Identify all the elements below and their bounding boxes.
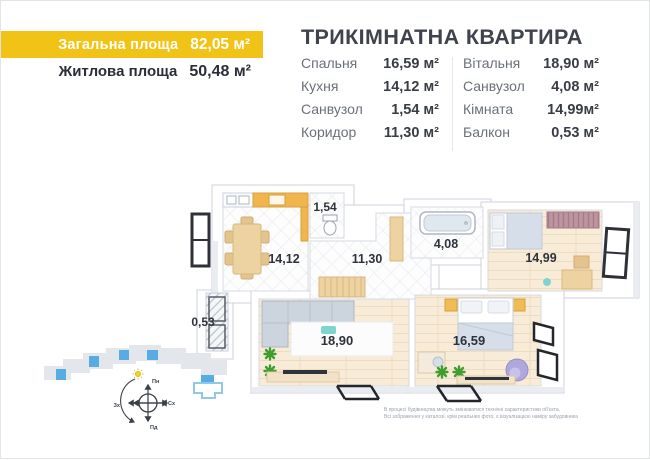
room-value: 0,53 м²: [551, 125, 599, 141]
table-row: Спальня 16,59 м²: [301, 55, 439, 78]
compass: Пн Сх Пд Зх: [113, 369, 175, 432]
room-label: Санвузол: [463, 78, 525, 94]
living-area-banner: Житлова площа 50,48 м²: [1, 58, 251, 85]
table-divider: [452, 57, 453, 151]
bed: [490, 213, 542, 249]
room-value: 4,08 м²: [551, 79, 599, 95]
room-area-label: 14,99: [525, 251, 556, 265]
room-label: Спальня: [301, 55, 357, 71]
bedroom-area-label: 16,59: [453, 333, 486, 348]
room-bedroom-1: 16,59: [415, 295, 557, 401]
table-row: Кухня 14,12 м²: [301, 78, 439, 101]
compass-south-label: Пд: [150, 425, 158, 431]
page-title: ТРИКІМНАТНА КВАРТИРА: [301, 25, 583, 50]
living-area-value: 50,48 м²: [189, 63, 251, 81]
room-table-right-column: Вітальня 18,90 м² Санвузол 4,08 м² Кімна…: [463, 55, 599, 147]
living-area-label: Житлова площа: [59, 63, 178, 80]
highlighted-building: [194, 375, 222, 398]
table-row: Коридор 11,30 м²: [301, 124, 439, 147]
room-label: Санвузол: [301, 101, 363, 117]
sun-icon: [133, 369, 144, 380]
compass-north-label: Пн: [152, 379, 159, 385]
tv-stand: [457, 376, 515, 384]
table-row: Санвузол 4,08 м²: [463, 78, 599, 101]
room-value: 1,54 м²: [391, 102, 439, 118]
room-window: [603, 228, 628, 277]
balcony-area-label: 0,53: [191, 315, 215, 329]
corridor-area-label: 11,30: [352, 252, 383, 266]
hall-cabinet: [390, 217, 403, 261]
room-label: Кухня: [301, 78, 338, 94]
total-area-value: 82,05 м²: [190, 36, 250, 54]
room-value: 11,30 м²: [384, 125, 439, 141]
room-table-left-column: Спальня 16,59 м² Кухня 14,12 м² Санвузол…: [301, 55, 439, 147]
room-value: 16,59 м²: [383, 56, 439, 72]
compass-west-label: Зх: [113, 403, 120, 409]
tv-stand: [267, 370, 339, 382]
disclaimer: В процесі будівництва можуть змінюватися…: [384, 407, 619, 420]
room-label: Вітальня: [463, 55, 520, 71]
bathroom-large-area-label: 4,08: [434, 237, 458, 251]
room-bathroom-small: 1,54: [310, 193, 344, 238]
room-kitchen: 14,12: [192, 193, 308, 291]
kitchen-area-label: 14,12: [268, 252, 299, 266]
plant-icon: [437, 367, 448, 378]
bathtub: [420, 212, 475, 234]
room-value: 14,99м²: [547, 102, 599, 118]
wardrobe: [319, 277, 365, 297]
living-area-label: 18,90: [321, 333, 354, 348]
room-living: 18,90: [259, 299, 409, 399]
compass-east-label: Сх: [168, 401, 176, 407]
table-row: Вітальня 18,90 м²: [463, 55, 599, 78]
room-label: Кімната: [463, 101, 513, 117]
toilet: [323, 215, 337, 235]
table-row: Кімната 14,99м²: [463, 101, 599, 124]
room-label: Коридор: [301, 124, 356, 140]
shelf: [574, 256, 589, 268]
room-value: 18,90 м²: [543, 56, 599, 72]
total-area-banner: Загальна площа 82,05 м²: [1, 31, 263, 58]
room-label: Балкон: [463, 124, 510, 140]
wardrobe: [547, 212, 599, 228]
page: Загальна площа 82,05 м² Житлова площа 50…: [0, 0, 650, 459]
pouf: [543, 278, 551, 286]
disclaimer-line-2: Всі зображення у каталозі, крім реальних…: [384, 414, 619, 421]
site-plan: Пн Сх Пд Зх: [44, 345, 227, 431]
total-area-label: Загальна площа: [58, 37, 178, 53]
kitchen-window: [192, 214, 209, 266]
desk: [562, 270, 592, 289]
table-row: Санвузол 1,54 м²: [301, 101, 439, 124]
bathroom-small-area-label: 1,54: [313, 200, 337, 214]
plant-icon: [265, 349, 276, 360]
room-bathroom-large: 4,08: [411, 207, 483, 258]
room-value: 14,12 м²: [383, 79, 439, 95]
table-row: Балкон 0,53 м²: [463, 124, 599, 147]
